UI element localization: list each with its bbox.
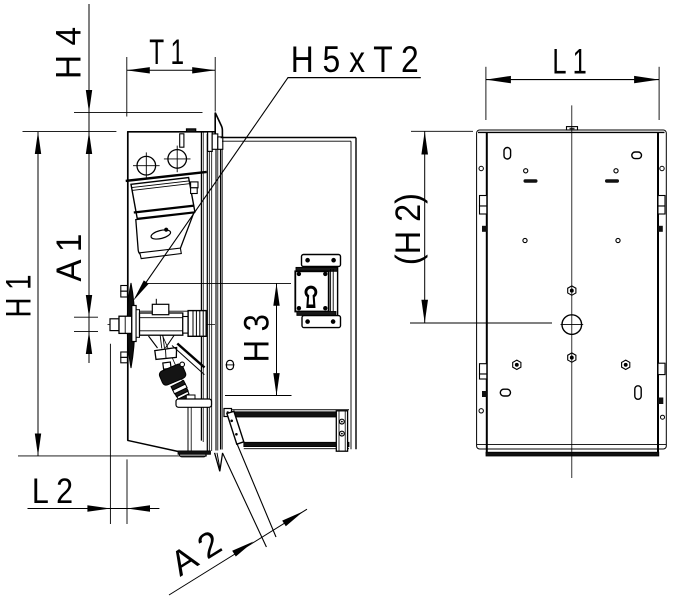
svg-text:H 1: H 1 <box>0 275 39 318</box>
svg-text:A 1: A 1 <box>50 234 89 282</box>
svg-text:H 4: H 4 <box>49 27 88 79</box>
svg-text:L 1: L 1 <box>552 43 586 82</box>
svg-text:L 2: L 2 <box>32 472 73 511</box>
svg-text:H 3: H 3 <box>238 314 277 362</box>
svg-text:T 1: T 1 <box>149 33 184 72</box>
svg-text:H 5 x T 2: H 5 x T 2 <box>291 39 419 80</box>
svg-text:(H 2): (H 2) <box>389 193 428 265</box>
